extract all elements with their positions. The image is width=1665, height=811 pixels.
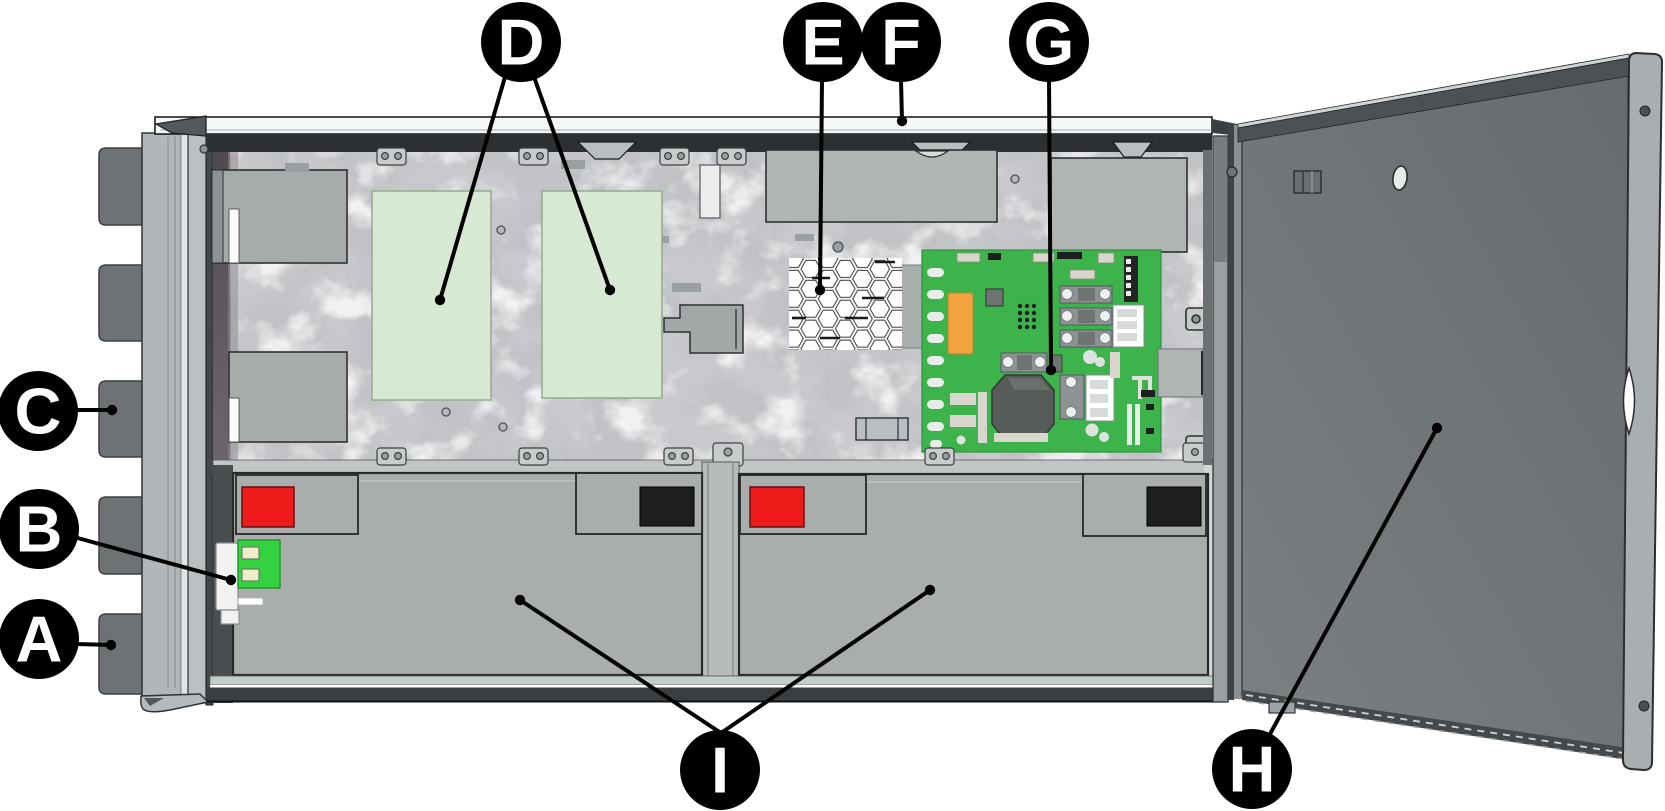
svg-text:C: C bbox=[15, 375, 62, 448]
svg-text:I: I bbox=[711, 734, 729, 807]
svg-text:H: H bbox=[1229, 733, 1276, 806]
svg-text:F: F bbox=[881, 6, 921, 79]
svg-text:A: A bbox=[16, 603, 63, 676]
svg-text:B: B bbox=[16, 493, 63, 566]
svg-text:D: D bbox=[498, 6, 545, 79]
svg-text:E: E bbox=[801, 6, 844, 79]
svg-text:G: G bbox=[1024, 6, 1075, 79]
